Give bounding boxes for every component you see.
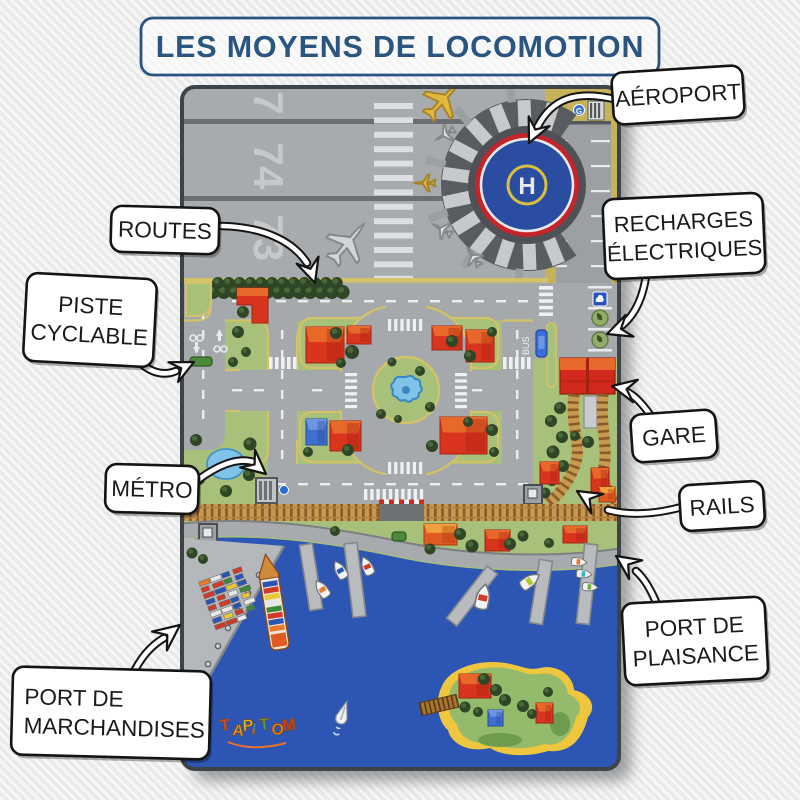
svg-text:74: 74	[245, 143, 292, 190]
svg-text:T: T	[259, 716, 271, 734]
svg-text:MÉTRO: MÉTRO	[111, 476, 193, 503]
svg-text:LES MOYENS DE LOCOMOTION: LES MOYENS DE LOCOMOTION	[156, 30, 645, 64]
svg-text:GARE: GARE	[641, 422, 706, 451]
svg-text:BUS: BUS	[521, 336, 531, 355]
svg-text:PISTE: PISTE	[58, 292, 124, 320]
svg-text:PORT DE: PORT DE	[644, 612, 744, 642]
svg-text:G: G	[576, 107, 582, 116]
svg-text:ROUTES: ROUTES	[118, 217, 212, 244]
svg-text:RAILS: RAILS	[689, 492, 755, 521]
svg-text:7: 7	[245, 91, 292, 114]
svg-text:M: M	[281, 716, 296, 734]
svg-text:H: H	[518, 173, 535, 200]
svg-text:MARCHANDISES: MARCHANDISES	[23, 713, 205, 743]
svg-text:PORT DE: PORT DE	[24, 684, 124, 712]
